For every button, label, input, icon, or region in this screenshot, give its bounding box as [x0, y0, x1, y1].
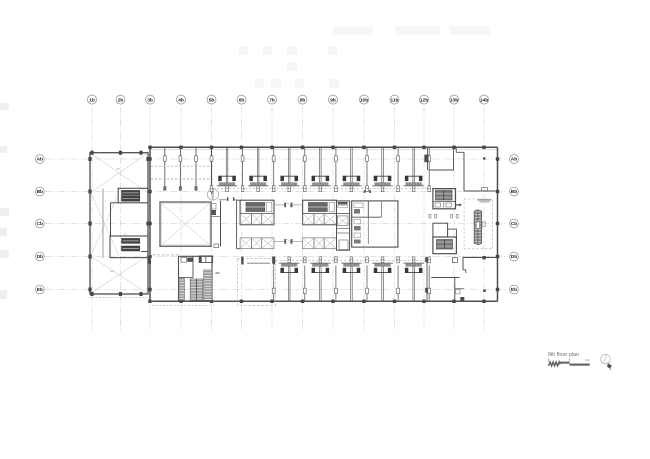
svg-text:8b: 8b [300, 97, 306, 103]
svg-text:xxx: xxx [116, 168, 120, 171]
svg-text:14b: 14b [480, 97, 488, 103]
svg-text:0: 0 [548, 358, 550, 362]
svg-text:Cb: Cb [37, 221, 43, 227]
svg-text:Bb: Bb [511, 189, 517, 195]
svg-text:Eb: Eb [511, 287, 517, 293]
svg-text:Db: Db [511, 254, 517, 260]
svg-text:1b: 1b [89, 97, 95, 103]
svg-text:Db: Db [37, 254, 43, 260]
svg-text:9b: 9b [330, 97, 336, 103]
svg-text:Ab: Ab [37, 157, 43, 163]
svg-text:Cb: Cb [511, 221, 517, 227]
svg-text:6b: 6b [239, 97, 245, 103]
svg-text:11b: 11b [390, 97, 398, 103]
svg-text:Bb: Bb [37, 189, 43, 195]
svg-text:5: 5 [569, 358, 571, 362]
svg-text:3b: 3b [147, 97, 153, 103]
svg-text:10b: 10b [360, 97, 368, 103]
svg-text:7b: 7b [269, 97, 275, 103]
svg-text:Eb: Eb [37, 287, 43, 293]
svg-text:13b: 13b [450, 97, 458, 103]
svg-text:4b: 4b [178, 97, 184, 103]
svg-text:7b: 7b [124, 233, 127, 235]
svg-text:10m: 10m [585, 358, 590, 362]
svg-text:5b: 5b [209, 97, 215, 103]
svg-text:9th floor plan: 9th floor plan [548, 352, 579, 358]
svg-text:2b: 2b [118, 97, 124, 103]
svg-text:Ab: Ab [511, 157, 517, 163]
svg-text:12b: 12b [420, 97, 428, 103]
